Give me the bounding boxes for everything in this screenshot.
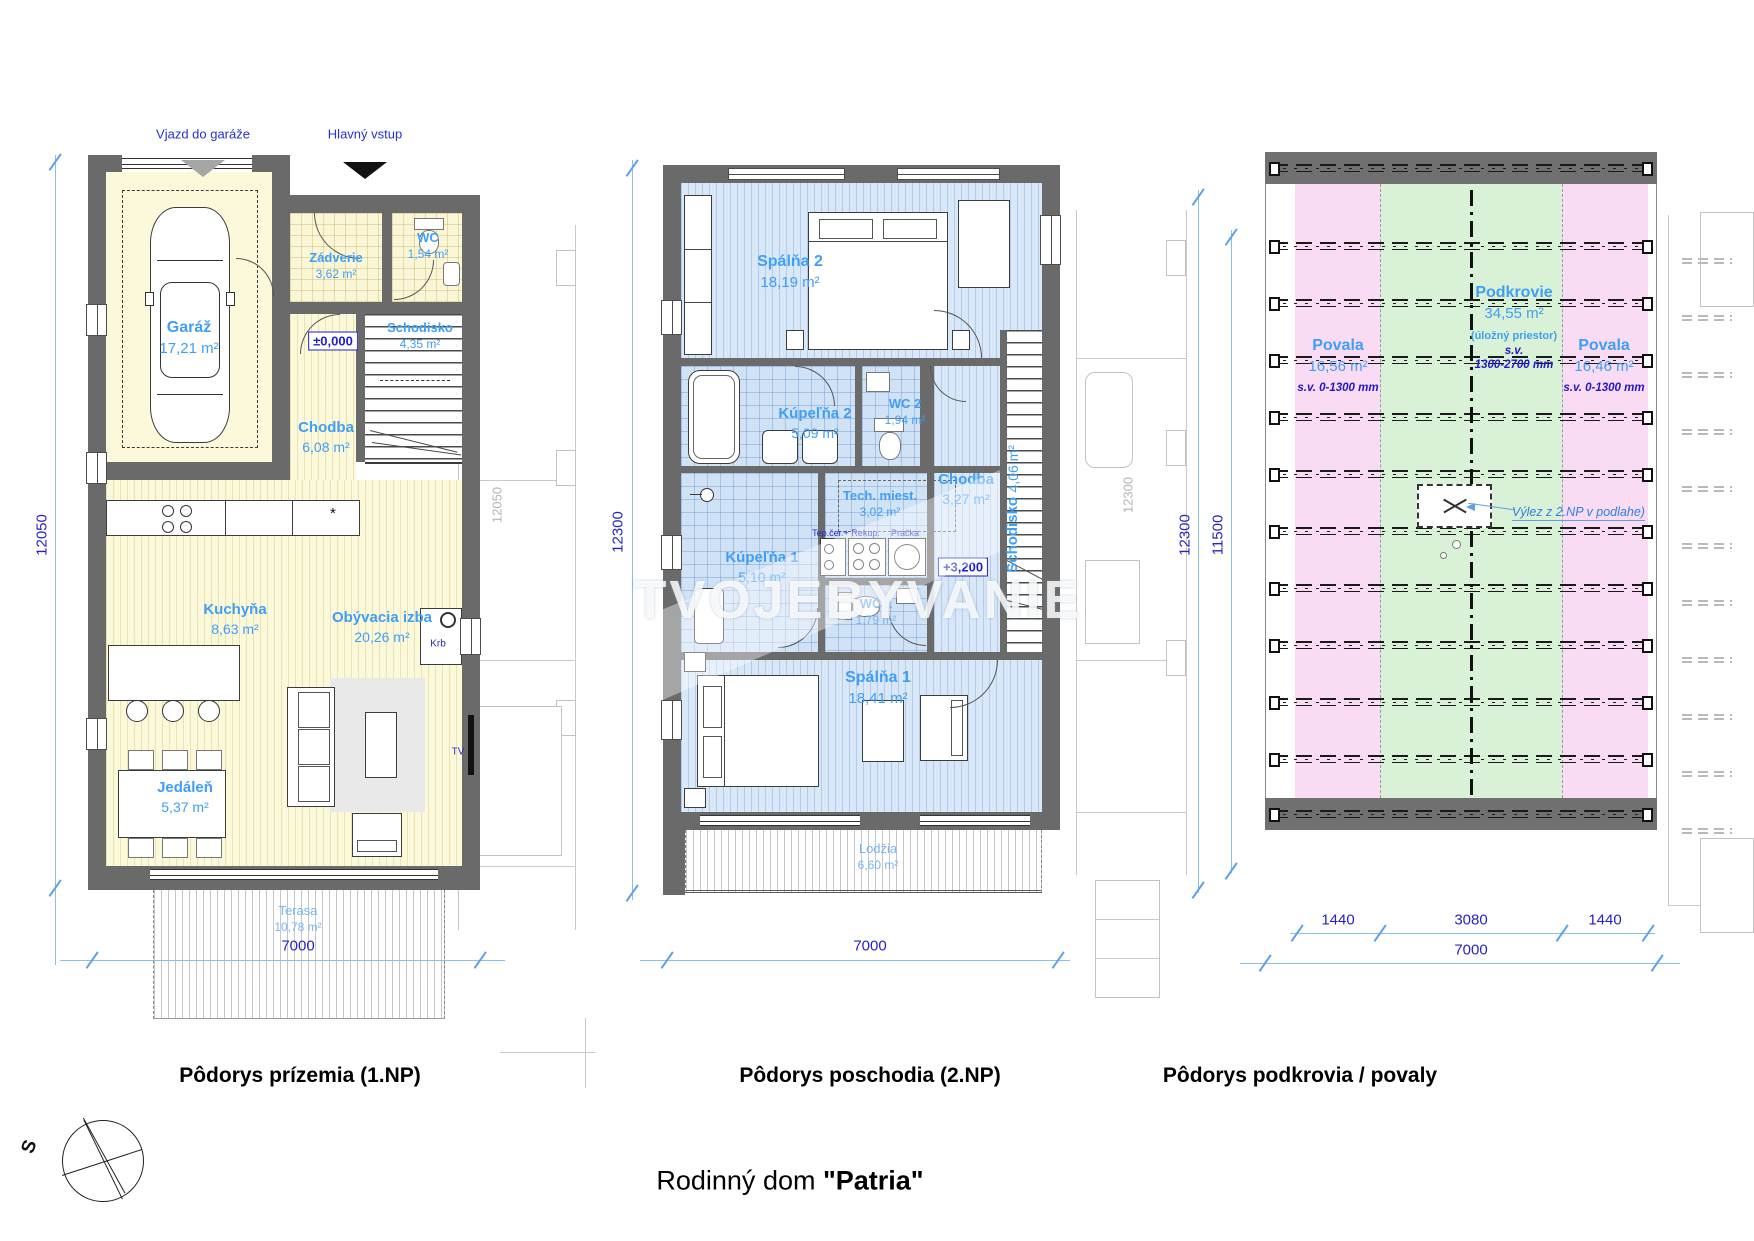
dimension-label-1440-left: 1440 <box>1321 912 1354 929</box>
corner-sink <box>866 372 890 392</box>
room-label-chodba1: Chodba 6,08 m² <box>298 418 354 456</box>
room-label-terasa: Terasa 10,78 m² <box>274 903 321 935</box>
stove-burner <box>180 505 192 517</box>
room-label-garaz: Garáž 17,21 m² <box>159 318 218 358</box>
dimension-label-11500: 11500 <box>1210 515 1227 556</box>
caption-upper: Pôdorys poschodia (2.NP) <box>739 1064 1000 1088</box>
ghost-window <box>1166 640 1186 676</box>
dimension-label-12050: 12050 <box>34 514 51 556</box>
ceiling-joist <box>1272 164 1650 172</box>
ghost-furniture <box>1085 560 1140 644</box>
podkrovie-sv1: s.v. <box>1505 345 1524 357</box>
ghost-furniture <box>1095 880 1160 998</box>
bathtub-icon <box>688 370 740 464</box>
window <box>460 618 481 655</box>
sofa-cushion <box>298 729 330 765</box>
room-label-schodisko2: Schodisko 4,06 m² <box>1004 445 1022 573</box>
wall <box>88 155 122 172</box>
stair-edge <box>365 462 462 464</box>
tv-label: TV <box>452 747 465 758</box>
height-note-right: s.v. 0-1300 mm <box>1563 382 1644 394</box>
dimension-line <box>55 155 56 965</box>
car-windshield <box>157 260 223 261</box>
room-label-zadverie: Zádverie 3,62 m² <box>309 250 362 282</box>
caption-ground: Pôdorys prízemia (1.NP) <box>179 1064 421 1088</box>
wall <box>290 302 480 314</box>
ghost-line <box>1076 812 1186 813</box>
wall <box>855 366 862 466</box>
zone-label-povala-right: Povala 16,46 m² <box>1574 336 1633 376</box>
window <box>661 535 682 570</box>
room-label-wc: WC 1,54 m² <box>408 230 449 262</box>
fireplace-flue <box>440 612 456 628</box>
sheet-title-prefix: Rodinný dom <box>656 1166 823 1196</box>
ghost-dimension-12050: 12050 <box>490 487 505 523</box>
window <box>1040 215 1061 265</box>
ghost-line <box>1076 358 1186 359</box>
loggia-sliding-door <box>700 815 860 826</box>
garage-entry-arrow-icon <box>181 160 225 177</box>
toilet-icon <box>879 432 901 460</box>
watermark-text: TVOJEBYVANIE <box>633 569 1082 631</box>
kitchen-counter <box>106 500 360 536</box>
stair-walkline <box>380 380 450 381</box>
dimension-line <box>1240 963 1680 964</box>
wall <box>88 462 290 480</box>
wall <box>382 213 392 302</box>
car-mirror <box>145 292 154 306</box>
ghost-joist-stub <box>1682 657 1732 663</box>
bar-stool <box>162 700 184 722</box>
kitchen-island <box>108 645 240 701</box>
sink-icon <box>443 262 460 286</box>
wall <box>663 830 685 895</box>
ghost-furniture <box>470 706 562 856</box>
main-entry-arrow-icon <box>343 162 387 179</box>
bar-stool <box>198 700 220 722</box>
car-rear-window <box>157 394 223 395</box>
podkrovie-note: (úložný priestor) <box>1471 330 1557 342</box>
window <box>661 700 682 740</box>
floorplan-sheet: Vjazd do garáže Hlavný vstup <box>0 0 1754 1241</box>
dimension-line <box>632 160 633 900</box>
height-note-left: s.v. 0-1300 mm <box>1297 382 1378 394</box>
ghost-furniture <box>1700 838 1754 933</box>
ghost-window <box>1166 240 1186 276</box>
room-label-kupelna2: Kúpeľňa 2 5,09 m² <box>778 404 851 442</box>
ceiling-joist <box>1272 299 1650 307</box>
counter-divider <box>292 500 293 536</box>
armchair-seat <box>357 840 397 852</box>
armchair-icon <box>352 813 402 857</box>
room-label-kuchyna: Kuchyňa 8,63 m² <box>203 600 266 638</box>
pillow <box>703 686 722 728</box>
ghost-line <box>585 1018 586 1088</box>
bar-stool <box>126 700 148 722</box>
sofa-cushion <box>298 766 330 802</box>
ghost-line <box>575 225 576 930</box>
sofa-cushion <box>298 692 330 728</box>
counter-divider <box>225 500 226 536</box>
ceiling-joist <box>1272 755 1650 763</box>
ghost-joist-stub <box>1682 828 1732 834</box>
wall <box>290 195 480 213</box>
ghost-joist-stub <box>1682 714 1732 720</box>
ceiling-joist <box>1272 470 1650 478</box>
ceiling-joist <box>1272 584 1650 592</box>
dimension-line <box>1290 933 1655 934</box>
podkrovie-sv2: 1300-2700 mm <box>1475 359 1554 371</box>
stove-burner <box>162 505 174 517</box>
dimension-label-7000-upper: 7000 <box>853 938 886 955</box>
pillow <box>819 219 873 239</box>
ghost-window <box>556 250 576 286</box>
chair <box>196 838 222 858</box>
wardrobe <box>684 195 712 355</box>
ghost-joist-stub <box>1682 258 1732 264</box>
room-label-jedalen: Jedáleň 5,37 m² <box>157 778 213 816</box>
dimension-label-7000-attic: 7000 <box>1454 942 1487 959</box>
ghost-joist-stub <box>1682 771 1732 777</box>
chair <box>196 750 222 770</box>
dimension-line <box>60 960 505 961</box>
chair <box>162 838 188 858</box>
nightstand <box>786 330 804 350</box>
window <box>86 304 107 336</box>
ghost-joist-stub <box>1682 372 1732 378</box>
dimension-line <box>1198 190 1199 893</box>
room-label-spalna2: Spálňa 2 18,19 m² <box>757 252 823 292</box>
wall <box>663 165 1060 183</box>
compass-north-label: S <box>17 1137 42 1156</box>
wall <box>88 155 106 890</box>
ghost-bathtub <box>1085 372 1133 468</box>
bed-icon <box>697 675 819 787</box>
chair <box>162 750 188 770</box>
ghost-joist-stub <box>1682 315 1732 321</box>
coffee-table <box>365 712 397 778</box>
ceiling-joist <box>1272 242 1650 250</box>
wall <box>681 358 1007 366</box>
ceiling-joist <box>1272 641 1650 649</box>
nightstand <box>684 788 706 808</box>
ceiling-joist <box>1272 810 1650 818</box>
toilet-tank <box>414 218 444 230</box>
ghost-dimension-12300: 12300 <box>1121 477 1136 513</box>
level-marker-ground: ±0,000 <box>308 332 358 351</box>
shower-arm <box>690 494 702 495</box>
dimension-label-7000-ground: 7000 <box>281 938 314 955</box>
ghost-joist-stub <box>1682 600 1732 606</box>
room-label-wc2: WC 2 1,94 m² <box>885 396 926 428</box>
ceiling-joist <box>1272 527 1650 535</box>
wall <box>272 155 290 480</box>
zone-label-povala-left: Povala 16,56 m² <box>1308 336 1367 376</box>
fireplace-label: Krb <box>430 639 446 650</box>
car-mirror <box>226 292 235 306</box>
ghost-window <box>1166 430 1186 466</box>
window <box>728 168 845 180</box>
pillow <box>883 219 937 239</box>
room-label-spalna1: Spálňa 1 18,41 m² <box>845 668 911 708</box>
window <box>86 452 107 484</box>
chair <box>128 838 154 858</box>
stove-burner <box>162 521 174 533</box>
ghost-joist-stub <box>1682 486 1732 492</box>
terrace-sliding-door <box>150 869 438 880</box>
loggia-sliding-door <box>920 815 1030 826</box>
dimension-label-12300-upper: 12300 <box>610 511 627 553</box>
wardrobe <box>958 200 1010 288</box>
ceiling-joist <box>1272 413 1650 421</box>
dimension-line <box>1231 230 1232 873</box>
window <box>661 300 682 335</box>
dimension-label-3080: 3080 <box>1454 912 1487 929</box>
shower-icon <box>700 488 714 502</box>
ceiling-joist <box>1272 698 1650 706</box>
ghost-line <box>500 1052 595 1053</box>
sheet-title-name: "Patria" <box>823 1166 924 1196</box>
ghost-joist-stub <box>1682 543 1732 549</box>
ghost-line <box>1076 210 1077 875</box>
garage-entry-label: Vjazd do garáže <box>156 127 250 142</box>
ghost-window <box>556 450 576 486</box>
tv-icon <box>468 715 474 775</box>
dimension-label-12300-attic: 12300 <box>1177 514 1194 556</box>
ghost-joist-stub <box>1682 429 1732 435</box>
room-label-schodisko1: Schodisko 4,35 m² <box>387 320 453 352</box>
caption-attic: Pôdorys podkrovia / povaly <box>1163 1064 1437 1088</box>
dimension-line <box>640 960 1070 961</box>
star-mark: * <box>330 505 336 522</box>
chair <box>128 750 154 770</box>
sofa-icon <box>287 687 335 807</box>
room-label-obyvacia: Obývacia izba 20,26 m² <box>332 608 432 646</box>
ghost-line <box>1668 215 1669 905</box>
sheet-title: Rodinný dom "Patria" <box>656 1166 923 1197</box>
hatch-detail-circle <box>1440 552 1447 559</box>
room-label-lodzia: Lodžia 6,60 m² <box>858 841 899 873</box>
hatch-leader-arrow <box>1466 503 1475 511</box>
window <box>897 168 1000 180</box>
main-entry-label: Hlavný vstup <box>328 127 402 142</box>
stove-burner <box>180 521 192 533</box>
wall <box>462 195 480 890</box>
table <box>862 700 904 762</box>
hatch-detail-circle <box>1452 540 1461 549</box>
dimension-label-1440-right: 1440 <box>1588 912 1621 929</box>
hatch-label: Výlez z 2.NP v podlahe) <box>1512 505 1645 521</box>
window <box>86 718 107 750</box>
pillow <box>703 736 722 778</box>
bed-icon <box>808 212 948 350</box>
zone-label-podkrovie: Podkrovie 34,55 m² <box>1475 283 1552 323</box>
